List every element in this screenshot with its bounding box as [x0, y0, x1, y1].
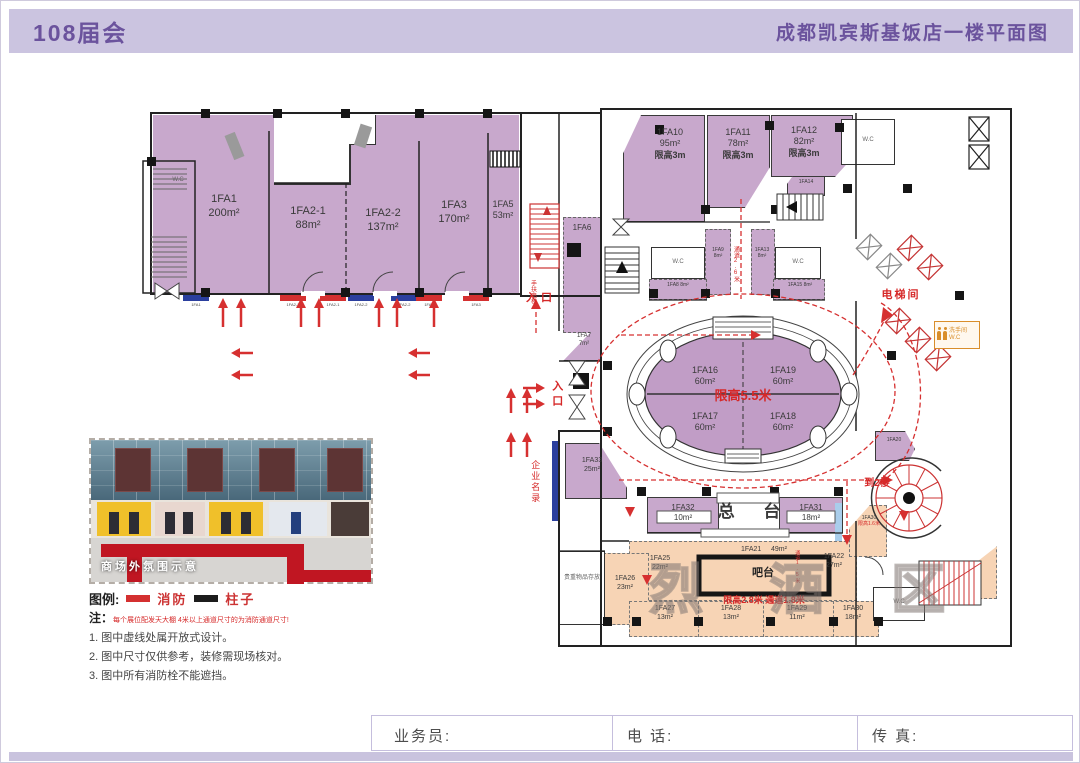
photo-poster: [115, 448, 151, 492]
photo-red-carpet: [287, 544, 304, 584]
room-label-1fa18: 1FA18 60m²: [755, 411, 811, 434]
header: 108届会 成都凯宾斯基饭店一楼平面图: [9, 9, 1073, 53]
room-id: 1FA25: [635, 555, 685, 564]
room-label-1fa26: 1FA26 23m²: [603, 575, 647, 593]
room-area: 18m²: [829, 614, 877, 623]
room-label-1fa20: 1FA20: [875, 437, 913, 443]
room-id: 1FA27: [637, 605, 693, 614]
room-area: 53m²: [483, 210, 523, 221]
wc-label: W.C: [163, 177, 193, 185]
room-label-1fa9: 1FA9 8m²: [705, 247, 731, 260]
room-id: 1FA19: [755, 365, 811, 376]
room-id: 1FA5: [483, 199, 523, 210]
room-id: 1FA22: [813, 553, 855, 562]
entrance-label-top: 入口: [519, 292, 563, 306]
room-label-1fa11: 1FA11 78m² 限高3m: [707, 127, 769, 161]
wc-label: W.C: [884, 599, 914, 607]
booth-marker: 1FA2-2: [348, 295, 374, 301]
photo-inset: 商场外氛围示意: [89, 438, 373, 584]
room-limit: 限高3m: [773, 148, 835, 159]
room-label-1fa30: 1FA30 18m²: [829, 605, 877, 623]
room-id: 1FA1: [189, 193, 259, 207]
company-directory-bar: [552, 441, 559, 521]
legend-fire-label: 消防: [157, 589, 187, 608]
room-label-1fa19: 1FA19 60m²: [755, 365, 811, 388]
room-area: 82m²: [773, 136, 835, 147]
room-area: 78m²: [707, 138, 769, 149]
room-id: 1FA10: [639, 127, 701, 138]
room-area: 11m²: [769, 614, 825, 623]
room-label-1fa6: 1FA6: [563, 223, 601, 233]
room-label-1fa12: 1FA12 82m² 限高3m: [773, 125, 835, 159]
photo-caption: 商场外氛围示意: [101, 558, 199, 574]
room-id: 1FA20: [875, 437, 913, 443]
room-area: 88m²: [273, 219, 343, 233]
room-1fa9: [705, 229, 731, 295]
bar-counter-label: 吧台: [735, 567, 791, 581]
room-area: 200m²: [189, 207, 259, 221]
room-area: 60m²: [677, 376, 733, 387]
note-item: 1. 图中虚线处属开放式设计。: [89, 629, 389, 645]
bar-zone-limit: 限高2.8米 通道1.8米: [689, 595, 839, 606]
room-area: 27m²: [813, 562, 855, 571]
row-divider: [763, 601, 764, 637]
footer-strip: [9, 752, 1073, 761]
booth-marker-label: 1FA2-2: [342, 302, 380, 307]
legend-title: 图例:: [89, 589, 119, 608]
room-area: 23m²: [603, 584, 647, 593]
room-label-1fa8: 1FA8 8m²: [653, 282, 703, 288]
plan-title: 成都凯宾斯基饭店一楼平面图: [776, 18, 1049, 45]
valuables-room: [559, 551, 605, 625]
elevator-hall-label: 电梯间: [869, 289, 933, 303]
room-id: 1FA21: [741, 546, 761, 553]
salesperson-field: 业务员:: [394, 725, 451, 746]
booth-marker-label: 1FA3: [457, 302, 495, 307]
room-id: 1FA17: [677, 411, 733, 422]
room-1fa20: [875, 431, 915, 461]
note-item: 3. 图中所有消防栓不能遮挡。: [89, 667, 389, 683]
note-item: 2. 图中尺寸仅供参考，装修需现场核对。: [89, 648, 389, 664]
corridor-15-label: 通道1.5米: [794, 543, 800, 589]
room-limit: 限高3m: [707, 150, 769, 161]
left-wing-cutout: [274, 115, 351, 185]
escalator-label: 手扶电梯: [528, 269, 536, 315]
room-label-1fa2-1: 1FA2-1 88m²: [273, 205, 343, 233]
room-label-1fa7: 1FA7 7m²: [567, 333, 601, 348]
room-id: 1FA26: [603, 575, 647, 584]
room-area: 137m²: [348, 221, 418, 235]
room-id: 1FA2-1: [273, 205, 343, 219]
booth-marker-label: 1FA1: [177, 302, 215, 307]
photo-storefronts: [91, 500, 371, 538]
room-id: 1FA12: [773, 125, 835, 136]
room-label-1fa29: 1FA29 11m²: [769, 605, 825, 623]
room-id: 1FA2-2: [348, 207, 418, 221]
room-label-1fa1: 1FA1 200m²: [189, 193, 259, 221]
room-label-1fa21: 1FA21 49m²: [701, 546, 827, 555]
company-directory-label: 企业名录: [529, 449, 540, 515]
photo-poster: [187, 448, 223, 492]
restroom-text: 洗手间: [949, 328, 967, 335]
room-label-1fa15: 1FA15 8m²: [775, 282, 825, 288]
room-1fa30-ramp: [849, 505, 887, 557]
booth-marker: 1FA2-2: [391, 295, 417, 301]
room-area: 10m²: [649, 513, 717, 523]
column-legend-icon: [194, 595, 218, 602]
valuables-label: 贵重物品存放: [562, 575, 602, 583]
room-id: 1FA7: [567, 333, 601, 341]
room-1fa6: [563, 217, 601, 333]
photo-red-carpet: [101, 544, 287, 557]
room-area: 8m²: [804, 282, 813, 288]
pink-triangle: [929, 539, 997, 599]
room-area: 22m²: [635, 564, 685, 573]
legend: 图例: 消防 柱子: [89, 589, 255, 608]
room-id: 1FA8: [667, 282, 679, 288]
escalator-icon: [530, 204, 559, 268]
notes: 注：每个展位配发天大棚 4米以上通道尺寸的为消防通道尺寸! 1. 图中虚线处属开…: [89, 609, 389, 683]
booth-marker: 1FA3: [416, 295, 442, 301]
restroom-badge: 洗手间 W.C: [934, 321, 980, 349]
room-id: 1FA33: [567, 457, 617, 466]
fire-legend-icon: [126, 595, 150, 602]
phone-field: 电 话:: [627, 725, 673, 746]
entrance-arrow-icons: [218, 298, 545, 457]
room-label-1fa10: 1FA10 95m² 限高3m: [639, 127, 701, 161]
booth-marker: 1FA3: [463, 295, 489, 301]
notes-header: 注：每个展位配发天大棚 4米以上通道尺寸的为消防通道尺寸!: [89, 609, 389, 626]
room-id: 1FA30: [829, 605, 877, 614]
person-icon: [937, 331, 941, 340]
room-id: 1FA6: [563, 223, 601, 233]
room-id: 1FA14: [789, 179, 823, 185]
room-limit: 限高1.6米: [849, 521, 889, 527]
room-label-1fa28: 1FA28 13m²: [703, 605, 759, 623]
footer-divider: [857, 716, 858, 750]
photo-red-carpet: [304, 570, 371, 582]
booth-marker-label: 1FA3: [410, 302, 448, 307]
page: 108届会 成都凯宾斯基饭店一楼平面图 1FA1 1FA2-1 1FA2-1 1…: [0, 0, 1080, 763]
room-area: 13m²: [637, 614, 693, 623]
room-area: 25m²: [567, 466, 617, 475]
room-label-1fa14: 1FA14: [789, 179, 823, 185]
room-id: 1FA16: [677, 365, 733, 376]
room-label-1fa2-2: 1FA2-2 137m²: [348, 207, 418, 235]
room-area: 49m²: [771, 546, 787, 553]
footer-divider: [612, 716, 613, 750]
room-id: 1FA11: [707, 127, 769, 138]
room-label-1fa5: 1FA5 53m²: [483, 199, 523, 222]
wc-label: W.C: [783, 259, 813, 267]
photo-glass-facade: [91, 440, 371, 500]
photo-shop: [209, 502, 263, 536]
room-label-1fa25: 1FA25 22m²: [635, 555, 685, 573]
room-area: 8m²: [705, 253, 731, 259]
room-id: 1FA29: [769, 605, 825, 614]
room-area: 7m²: [567, 341, 601, 349]
wc-label: W.C: [853, 137, 883, 145]
room-label-1fa17: 1FA17 60m²: [677, 411, 733, 434]
fax-field: 传 真:: [872, 725, 918, 746]
entrance-label-side: 入口: [549, 373, 563, 417]
photo-shop: [97, 502, 151, 536]
room-1fa13: [751, 229, 775, 295]
room-area: 60m²: [755, 422, 811, 433]
room-area: 170m²: [419, 213, 489, 227]
room-label-1fa22: 1FA22 27m²: [813, 553, 855, 571]
photo-shop: [331, 502, 369, 536]
wc-label: W.C: [663, 259, 693, 267]
photo-shop: [269, 502, 327, 536]
reception-label: 总 台: [715, 501, 795, 522]
booth-marker: 1FA2-1: [320, 295, 346, 301]
booth-marker: 1FA1: [183, 295, 209, 301]
room-id: 1FA18: [755, 411, 811, 422]
room-label-1fa27: 1FA27 13m²: [637, 605, 693, 623]
room-area: 13m²: [703, 614, 759, 623]
room-id: 1FA15: [788, 282, 802, 288]
restroom-wc-text: W.C: [949, 335, 967, 342]
footer-bar: 业务员: 电 话: 传 真:: [371, 715, 1073, 751]
corridor-26-label: 通道2.6米: [731, 233, 739, 295]
photo-poster: [259, 448, 295, 492]
room-id: 1FA28: [703, 605, 759, 614]
notes-red-note: 每个展位配发天大棚 4米以上通道尺寸的为消防通道尺寸!: [113, 617, 289, 624]
booth-marker: 1FA2-1: [280, 295, 306, 301]
room-label-1fa32: 1FA32 10m²: [649, 503, 717, 523]
oval-height-limit: 限高5.5米: [693, 388, 793, 404]
notes-prefix: 注：: [89, 611, 113, 625]
photo-shop: [155, 502, 205, 536]
room-label-1fa13: 1FA13 8m²: [749, 247, 775, 260]
room-label-1fa33: 1FA33 25m²: [567, 457, 617, 475]
photo-poster: [327, 448, 363, 492]
room-label-1fa30-ramp: 1FA30 限高1.6米: [849, 515, 889, 528]
room-area: 60m²: [677, 422, 733, 433]
room-id: 1FA3: [419, 199, 489, 213]
to-2nd-floor-label: 到2楼: [855, 478, 899, 491]
room-area: 60m²: [755, 376, 811, 387]
person-icon: [943, 331, 947, 340]
row-divider: [698, 601, 699, 637]
booth-marker-label: 1FA2-1: [274, 302, 312, 307]
room-label-1fa3: 1FA3 170m²: [419, 199, 489, 227]
room-id: 1FA32: [649, 503, 717, 513]
room-area: 8m²: [680, 282, 689, 288]
room-limit: 限高3m: [639, 150, 701, 161]
room-label-1fa16: 1FA16 60m²: [677, 365, 733, 388]
room-area: 8m²: [749, 253, 775, 259]
page-title: 108届会: [33, 14, 127, 48]
legend-column-label: 柱子: [225, 589, 255, 608]
room-area: 95m²: [639, 138, 701, 149]
